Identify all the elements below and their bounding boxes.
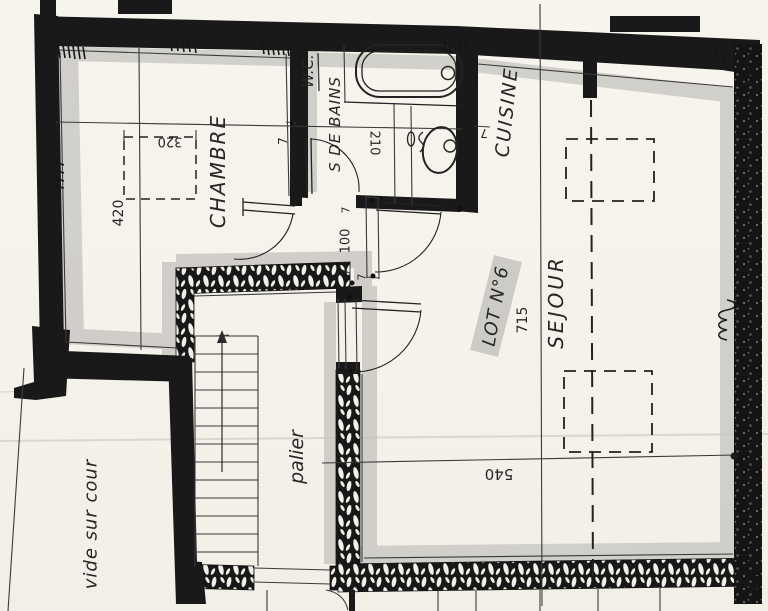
dim-wall-7-door-top: 7 — [340, 207, 353, 214]
room-label-vide-sur-cour: vide sur cour — [81, 459, 102, 590]
dashed-elements — [124, 100, 654, 586]
dim-chambre-420: 420 — [111, 200, 127, 227]
dim-wall-7-wc: 7 — [276, 137, 290, 145]
washbasin — [408, 125, 461, 175]
hatched-walls — [176, 262, 760, 592]
room-label-sejour: SEJOUR — [544, 255, 568, 349]
room-label-chambre: CHAMBRE — [206, 114, 230, 228]
scanned-floor-plan: CHAMBRE W.C. S DE BAINS CUISINE SEJOUR L… — [0, 0, 768, 611]
roof-window-2 — [564, 371, 652, 452]
dim-sejour-715: 715 — [515, 307, 531, 334]
dim-door-100: 100 — [339, 229, 354, 254]
staircase — [195, 335, 258, 566]
dim-line-end-dot — [731, 453, 738, 460]
dim-sejour-540: 540 — [485, 465, 514, 483]
dim-wall-7-palier: 7 — [356, 274, 369, 281]
right-exterior-wall — [734, 44, 762, 604]
dim-wall-7-door-bottom: 7 — [340, 269, 353, 276]
room-label-palier: palier — [286, 430, 308, 484]
room-label-salle-de-bains: S DE BAINS — [326, 76, 344, 172]
dim-wall-7-cuisine: 7 — [480, 126, 488, 140]
roof-window-1 — [566, 139, 654, 201]
ceiling-break-line — [591, 100, 593, 586]
dim-sdb-210: 210 — [367, 131, 382, 156]
room-label-wc: W.C. — [299, 54, 317, 88]
dim-placard-320: 320 — [158, 134, 183, 149]
floorplan-drawing — [0, 0, 768, 611]
bathtub — [344, 45, 462, 106]
junction-hatch-ticks — [54, 38, 760, 601]
